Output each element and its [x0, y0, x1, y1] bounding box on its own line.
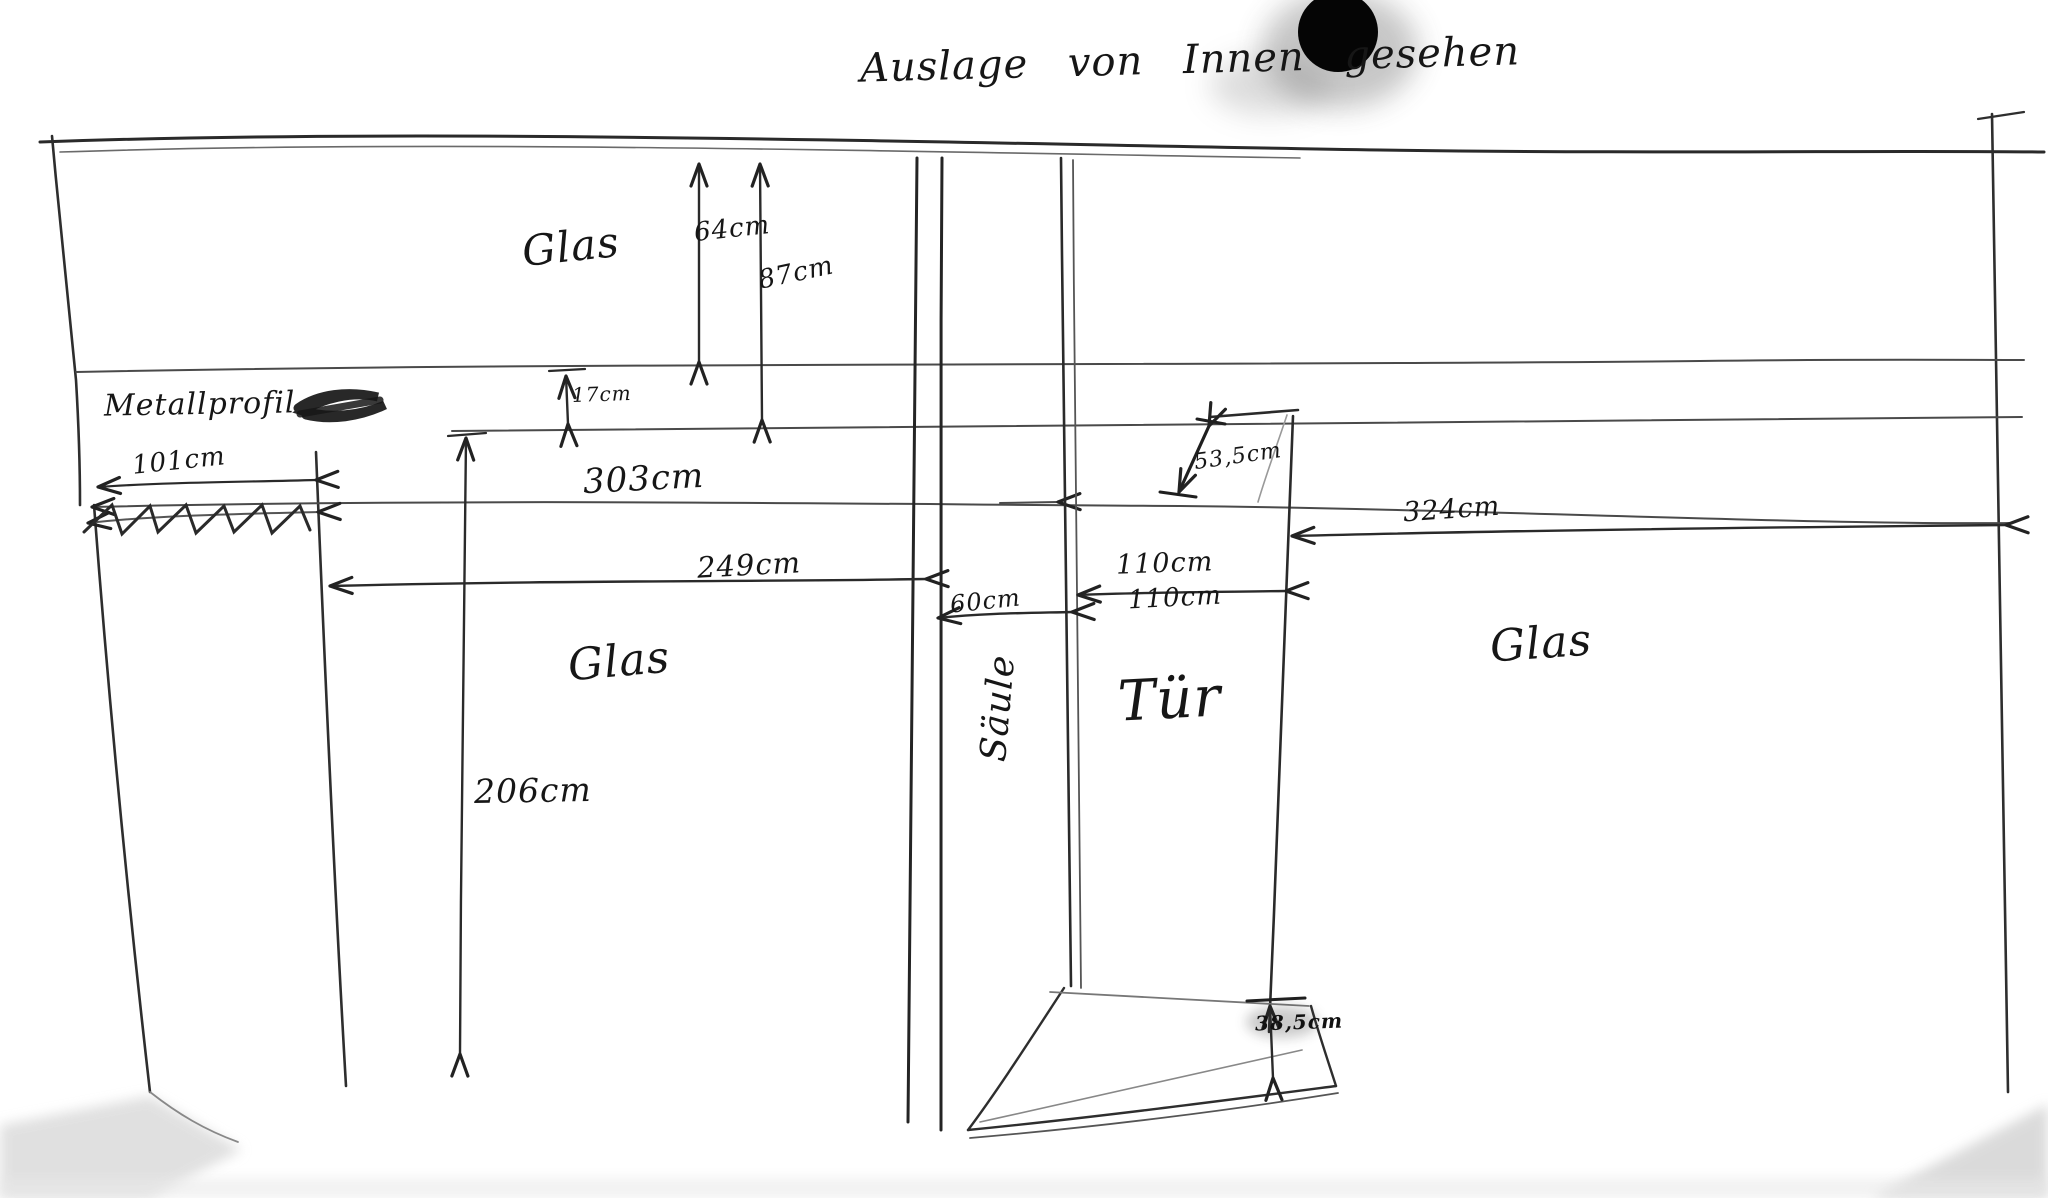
span-303-arrow-end	[1000, 502, 1058, 503]
hatch-zigzag	[84, 505, 310, 534]
dim-label-60cm: 60cm	[949, 585, 1022, 616]
dim-label-110cm-top: 110cm	[1116, 548, 1214, 578]
top-edge-second-line	[60, 146, 1300, 158]
dim-label-249cm: 249cm	[696, 548, 801, 582]
dim-17-arrow	[566, 376, 568, 424]
label-metal-profile: Metallprofil	[104, 388, 296, 421]
dim-206-arrow	[460, 438, 466, 1054]
frame-strokes	[40, 112, 2044, 1142]
door-left-line	[1061, 158, 1071, 986]
top-edge-line	[40, 136, 2044, 152]
label-door: Tür	[1117, 669, 1223, 730]
column-strokes	[908, 158, 942, 1130]
dim-label-303cm: 303cm	[582, 459, 705, 499]
label-glass-right: Glas	[1489, 618, 1594, 669]
photo-shadows	[0, 1096, 2048, 1198]
left-edge-line	[52, 136, 80, 505]
label-column: Säule	[976, 653, 1021, 763]
dim-17-top-tick	[549, 369, 585, 371]
band-line-lower	[452, 417, 2022, 431]
dim-324-line	[1292, 525, 2006, 536]
dim-label-110cm-bottom: 110cm	[1127, 583, 1222, 614]
dim-label-324cm: 324cm	[1402, 493, 1501, 527]
door-left-second-line	[1073, 160, 1081, 988]
door-frame-top-tick	[1210, 410, 1298, 417]
dim-385-top-tick	[1247, 998, 1305, 1001]
scribble-redaction	[298, 394, 385, 418]
dim-249-line	[330, 579, 926, 586]
dim-206-top-tick	[448, 433, 486, 436]
left-pane-right-edge	[316, 452, 346, 1086]
band-line-upper	[76, 360, 2024, 372]
label-glass-left: Glas	[566, 636, 671, 689]
dim-label-206cm: 206cm	[474, 773, 592, 808]
dim-label-38-5cm: 38,5cm	[1255, 1010, 1344, 1033]
sketch-photo: Auslage von Innen gesehen Glas 64cm 87cm…	[0, 0, 2048, 1198]
right-edge-top-tick	[1978, 112, 2024, 119]
dim-101-line	[98, 480, 316, 487]
dimension-strokes	[84, 164, 2006, 1078]
dim-label-17cm: 17cm	[572, 383, 632, 405]
right-edge-line	[1992, 114, 2008, 1092]
profile-bands	[76, 360, 2024, 523]
left-wall-line	[94, 505, 150, 1092]
label-glass-top: Glas	[520, 221, 621, 273]
sketch-canvas	[0, 0, 2048, 1198]
dim-label-64cm: 64cm	[693, 212, 772, 246]
full-width-line	[92, 502, 2012, 523]
